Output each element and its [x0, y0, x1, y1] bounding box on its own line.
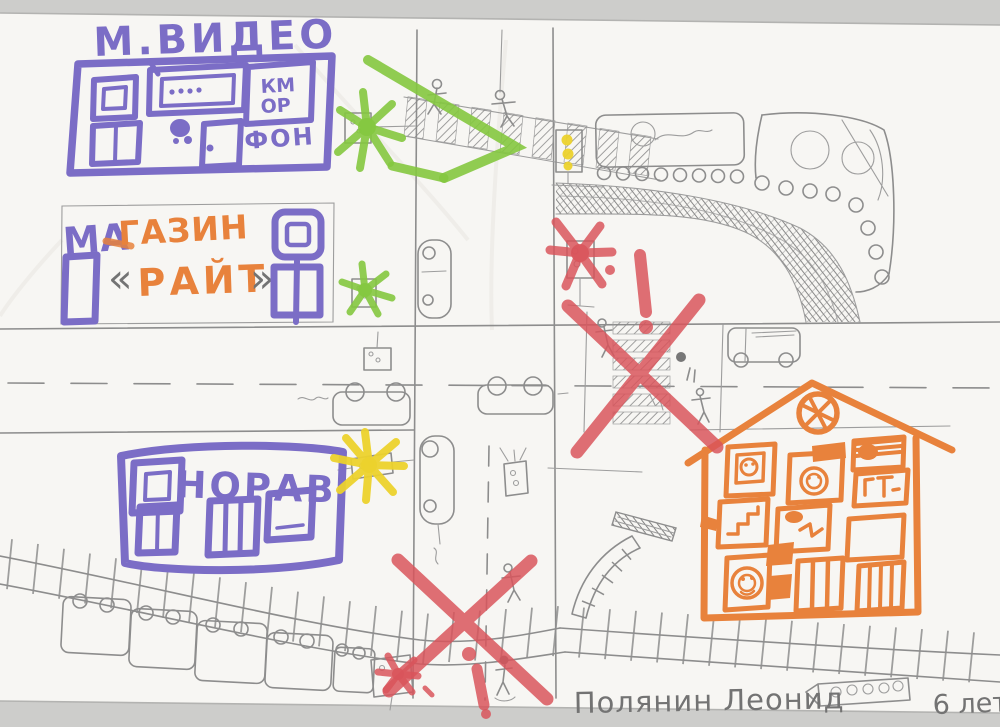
scanned-child-drawing: М.ВИДЕО КМ ОР ФОН МА ГАЗИН РАЙТ « »: [0, 0, 1000, 727]
mvideo-sign-line2: ОР: [260, 94, 291, 118]
mvideo-sign-line3: ФОН: [243, 122, 315, 155]
signature-age: 6 лет: [932, 687, 1000, 721]
chevron-left: «: [108, 256, 132, 302]
drawing-canvas: М.ВИДЕО КМ ОР ФОН МА ГАЗИН РАЙТ « »: [0, 0, 1000, 727]
signature-name: Полянин Леонид: [574, 681, 845, 720]
magazin-word-end: ГАЗИН: [117, 207, 249, 253]
